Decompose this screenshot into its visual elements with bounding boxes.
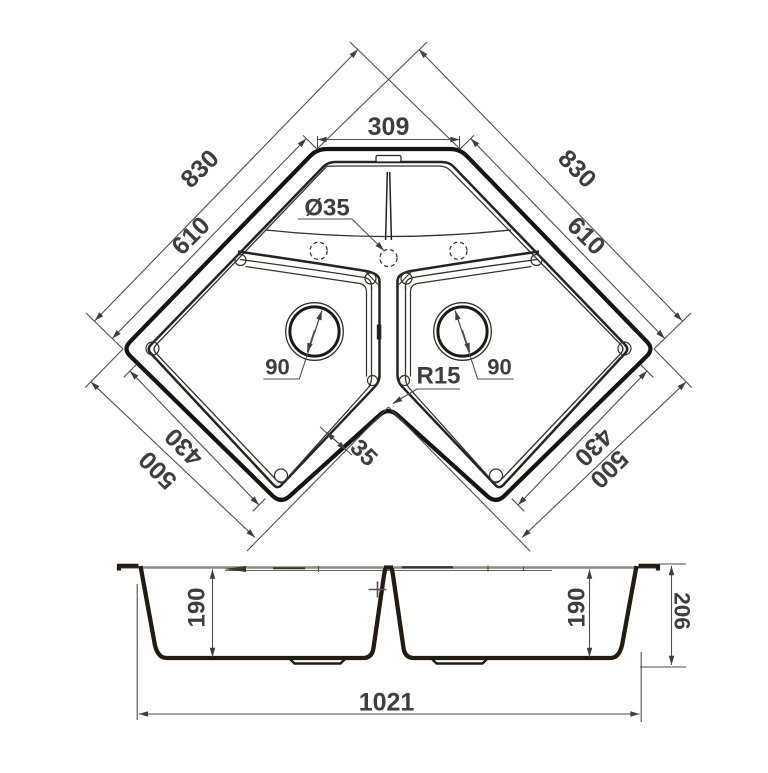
svg-text:610: 610	[561, 211, 610, 260]
svg-text:830: 830	[175, 144, 224, 193]
svg-text:190: 190	[184, 587, 211, 627]
svg-text:1021: 1021	[359, 689, 415, 717]
svg-text:610: 610	[166, 211, 215, 260]
svg-text:309: 309	[368, 113, 410, 141]
svg-text:190: 190	[564, 587, 591, 627]
svg-text:830: 830	[552, 144, 601, 193]
svg-text:90: 90	[265, 355, 289, 380]
svg-text:206: 206	[670, 592, 695, 630]
svg-text:Ø35: Ø35	[304, 195, 349, 222]
svg-text:R15: R15	[416, 363, 460, 390]
svg-text:90: 90	[487, 355, 511, 380]
